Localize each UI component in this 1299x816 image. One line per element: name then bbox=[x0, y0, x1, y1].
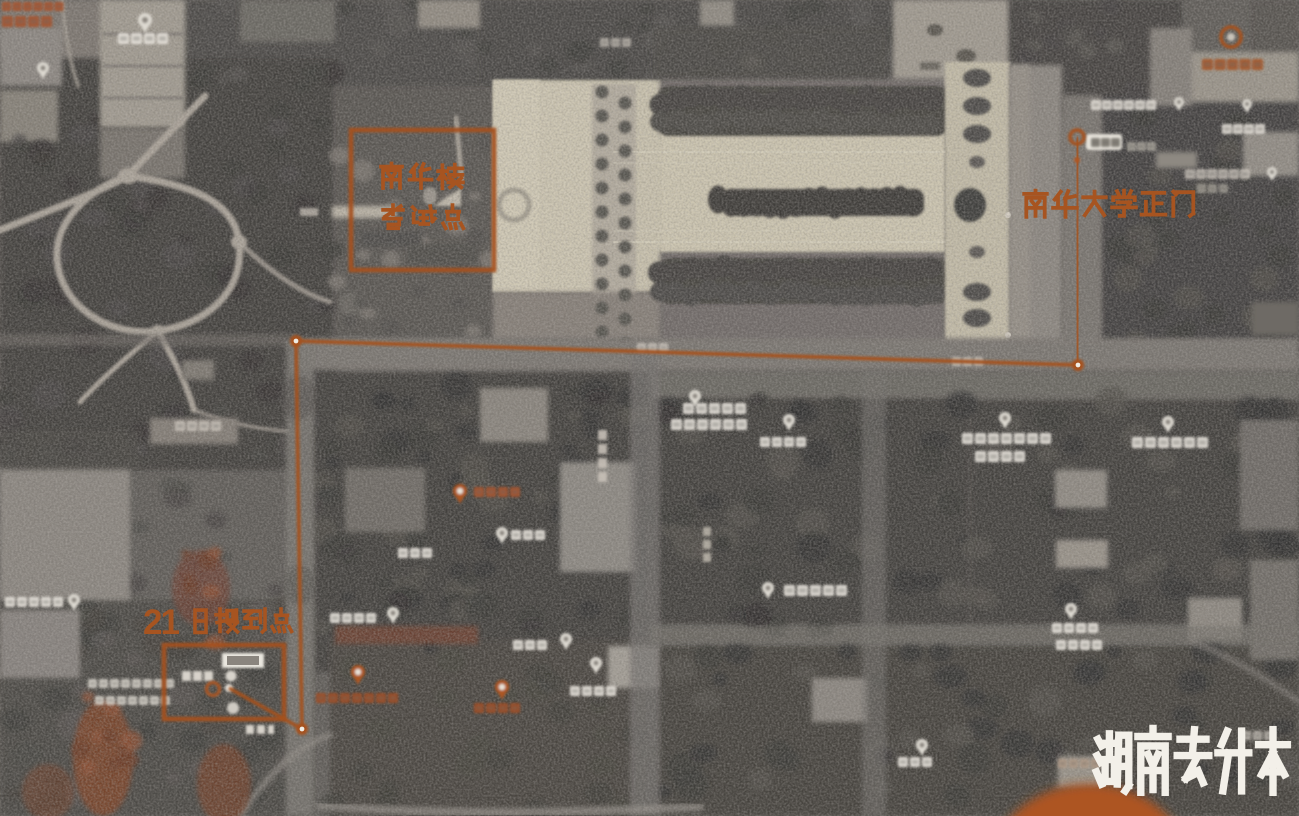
svg-text:21: 21 bbox=[143, 603, 179, 642]
